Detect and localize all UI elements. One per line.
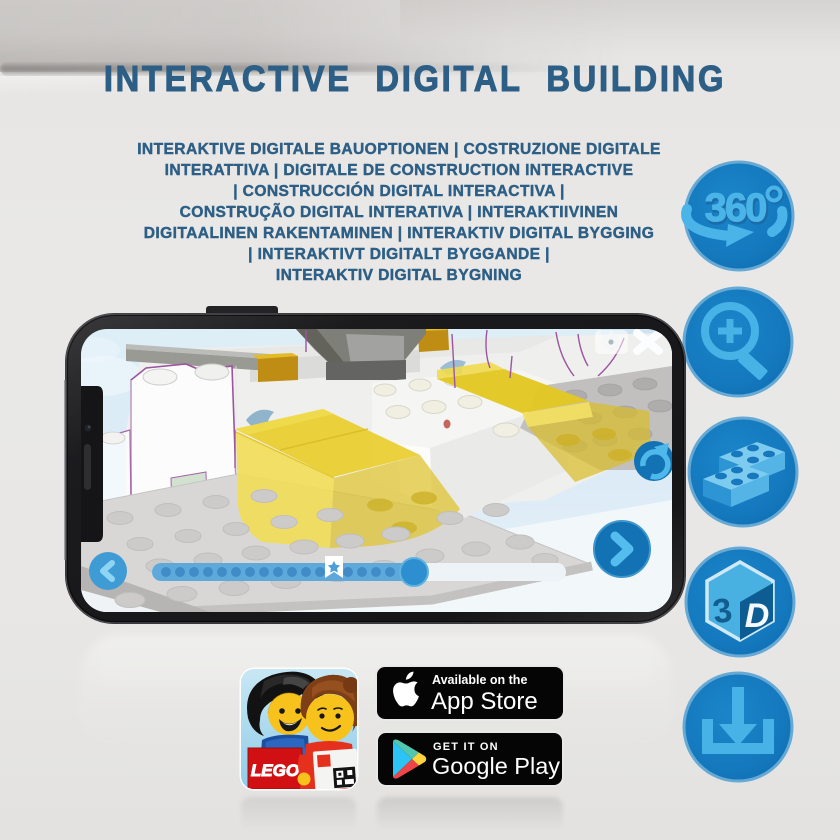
svg-text:Available on the: Available on the [432, 673, 527, 687]
svg-text:GET IT ON: GET IT ON [433, 741, 499, 753]
svg-text:LEGO: LEGO [251, 761, 299, 780]
svg-text:App Store: App Store [431, 688, 538, 715]
svg-text:Google Play: Google Play [432, 753, 560, 779]
